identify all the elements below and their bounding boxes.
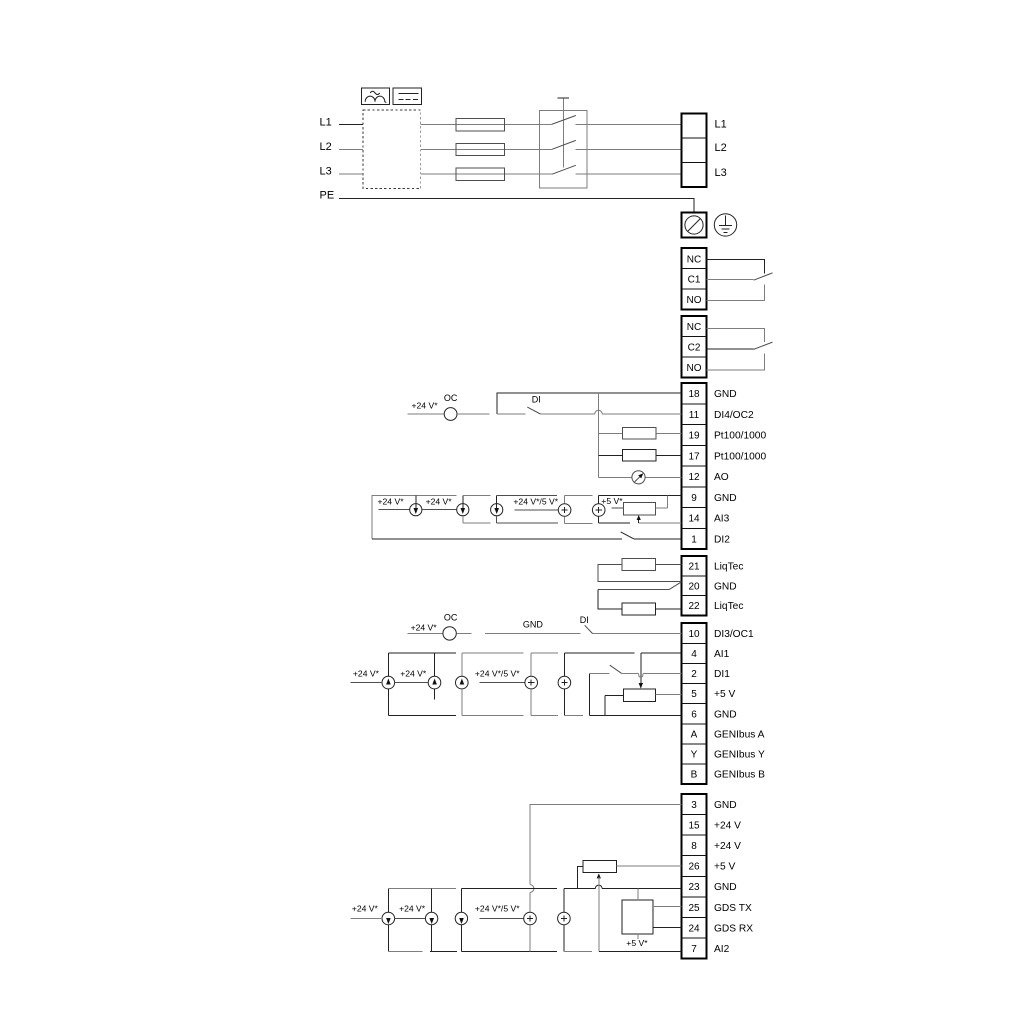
svg-text:GND: GND	[714, 581, 737, 592]
svg-text:3: 3	[691, 800, 697, 811]
svg-text:L2: L2	[715, 142, 727, 154]
svg-text:DI2: DI2	[714, 534, 730, 545]
svg-text:AI3: AI3	[714, 514, 730, 525]
svg-text:PE: PE	[320, 189, 335, 201]
svg-text:L2: L2	[320, 141, 332, 153]
svg-text:+24 V*: +24 V*	[400, 669, 427, 679]
svg-text:Pt100/1000: Pt100/1000	[714, 431, 766, 442]
svg-text:+24 V*: +24 V*	[399, 904, 426, 914]
svg-text:A: A	[691, 729, 698, 740]
svg-text:23: 23	[688, 882, 700, 893]
svg-text:22: 22	[688, 601, 700, 612]
svg-text:+5 V*: +5 V*	[626, 938, 648, 948]
svg-text:NO: NO	[687, 363, 702, 374]
svg-text:+24 V: +24 V	[714, 820, 741, 831]
svg-text:+24 V*/5 V*: +24 V*/5 V*	[475, 669, 520, 679]
svg-text:8: 8	[691, 841, 697, 852]
svg-text:DI4/OC2: DI4/OC2	[714, 410, 754, 421]
svg-text:14: 14	[688, 514, 700, 525]
svg-text:+24 V*: +24 V*	[353, 669, 380, 679]
svg-text:+24 V*/5 V*: +24 V*/5 V*	[513, 496, 558, 506]
svg-text:GENIbus B: GENIbus B	[714, 770, 765, 781]
svg-text:21: 21	[688, 562, 700, 573]
svg-text:GDS RX: GDS RX	[714, 923, 753, 934]
svg-text:OC: OC	[444, 393, 458, 403]
svg-text:C2: C2	[688, 343, 701, 354]
svg-text:19: 19	[688, 431, 700, 442]
svg-text:GND: GND	[523, 620, 544, 630]
svg-text:L3: L3	[320, 165, 332, 177]
svg-text:+24 V*: +24 V*	[411, 623, 438, 633]
svg-text:Pt100/1000: Pt100/1000	[714, 451, 766, 462]
svg-text:10: 10	[688, 629, 700, 640]
svg-text:NO: NO	[687, 295, 702, 306]
svg-text:+24 V: +24 V	[714, 841, 741, 852]
svg-text:DI1: DI1	[714, 669, 730, 680]
svg-text:Y: Y	[691, 750, 698, 761]
svg-text:7: 7	[691, 944, 697, 955]
svg-text:NC: NC	[687, 254, 701, 265]
svg-text:GDS TX: GDS TX	[714, 903, 752, 914]
svg-text:25: 25	[688, 903, 700, 914]
svg-text:+24 V*: +24 V*	[412, 401, 439, 411]
svg-text:B: B	[691, 770, 698, 781]
svg-text:DI3/OC1: DI3/OC1	[714, 629, 754, 640]
svg-text:+5 V: +5 V	[714, 689, 735, 700]
svg-text:GENIbus Y: GENIbus Y	[714, 750, 765, 761]
svg-text:24: 24	[688, 923, 700, 934]
svg-text:+24 V*: +24 V*	[352, 904, 379, 914]
svg-text:AI2: AI2	[714, 944, 730, 955]
svg-text:+5 V*: +5 V*	[601, 496, 623, 506]
svg-text:18: 18	[688, 389, 700, 400]
svg-text:11: 11	[689, 410, 700, 421]
svg-text:9: 9	[691, 493, 697, 504]
svg-text:LiqTec: LiqTec	[714, 601, 743, 612]
svg-text:4: 4	[691, 649, 697, 660]
svg-text:AI1: AI1	[714, 649, 730, 660]
svg-text:12: 12	[688, 472, 700, 483]
svg-text:GND: GND	[714, 389, 737, 400]
svg-text:1: 1	[691, 534, 697, 545]
svg-text:L1: L1	[715, 119, 727, 131]
svg-text:L3: L3	[715, 167, 727, 179]
svg-text:AO: AO	[714, 472, 729, 483]
svg-text:C1: C1	[688, 275, 701, 286]
svg-text:LiqTec: LiqTec	[714, 562, 743, 573]
svg-text:20: 20	[688, 581, 700, 592]
svg-text:L1: L1	[320, 116, 332, 128]
svg-text:DI: DI	[532, 395, 541, 405]
svg-text:NC: NC	[687, 322, 701, 333]
svg-text:+24 V*: +24 V*	[426, 497, 453, 507]
svg-text:5: 5	[691, 689, 697, 700]
svg-text:GND: GND	[714, 493, 737, 504]
svg-text:+24 V*: +24 V*	[378, 497, 405, 507]
svg-text:GENIbus A: GENIbus A	[714, 729, 765, 740]
svg-text:+5 V: +5 V	[714, 862, 735, 873]
svg-text:+24 V*/5 V*: +24 V*/5 V*	[475, 904, 520, 914]
svg-text:15: 15	[688, 820, 700, 831]
svg-text:2: 2	[691, 669, 697, 680]
svg-text:GND: GND	[714, 709, 737, 720]
svg-text:DI: DI	[580, 615, 589, 625]
svg-text:OC: OC	[444, 613, 458, 623]
svg-text:GND: GND	[714, 882, 737, 893]
svg-text:17: 17	[688, 451, 700, 462]
svg-text:26: 26	[688, 862, 700, 873]
svg-text:GND: GND	[714, 800, 737, 811]
svg-text:6: 6	[691, 709, 697, 720]
